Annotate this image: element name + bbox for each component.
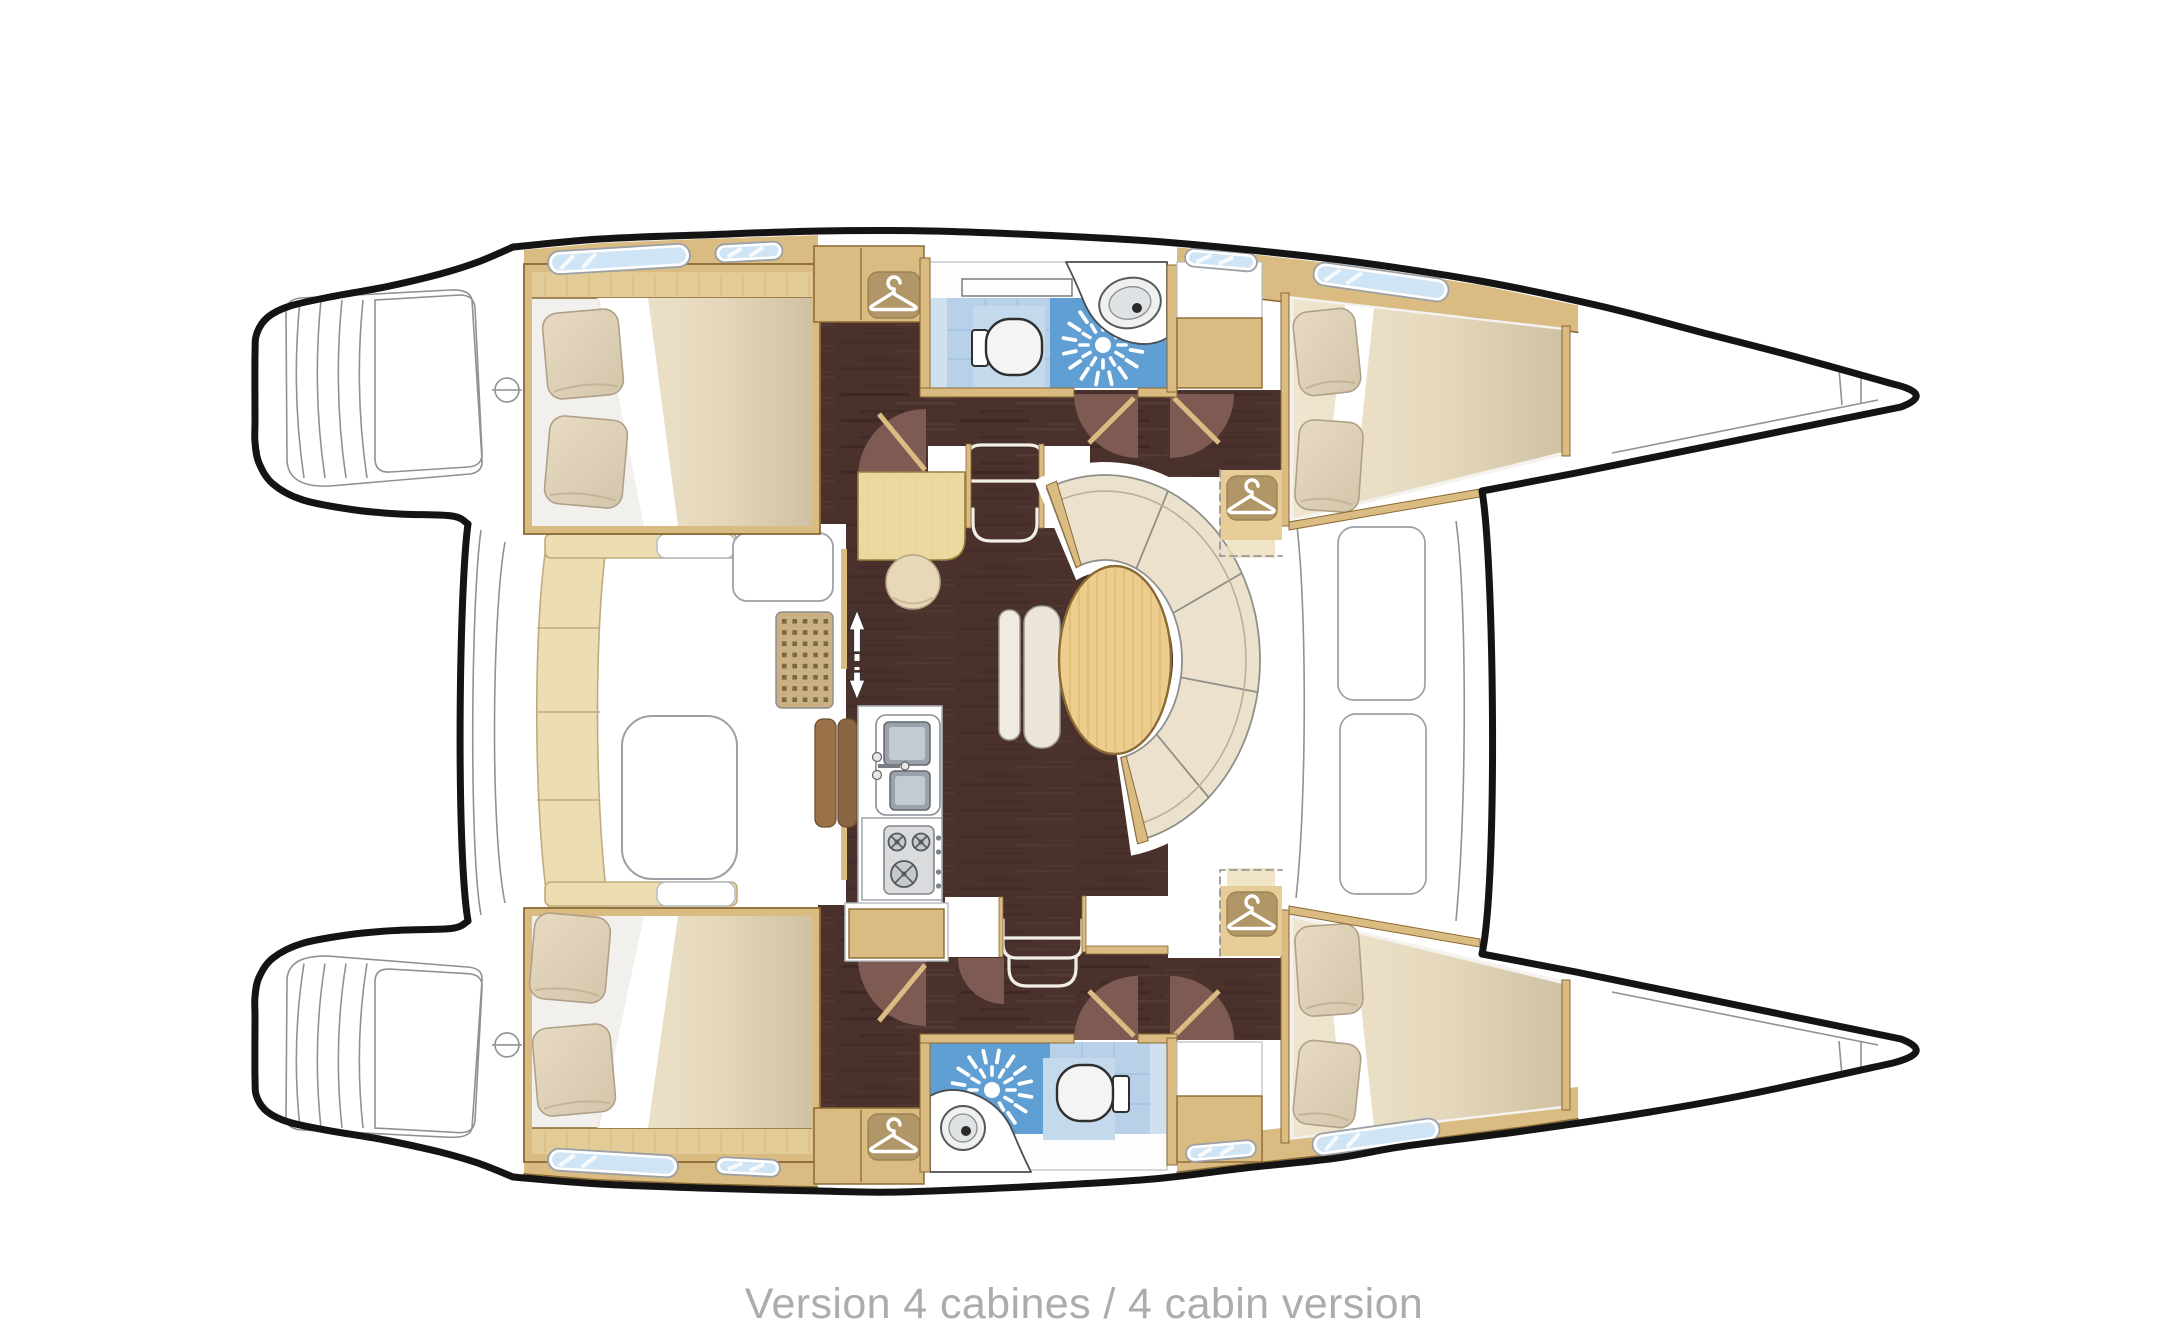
svg-text:Version 4 cabines / 4 cabin ve: Version 4 cabines / 4 cabin version — [745, 1280, 1424, 1328]
